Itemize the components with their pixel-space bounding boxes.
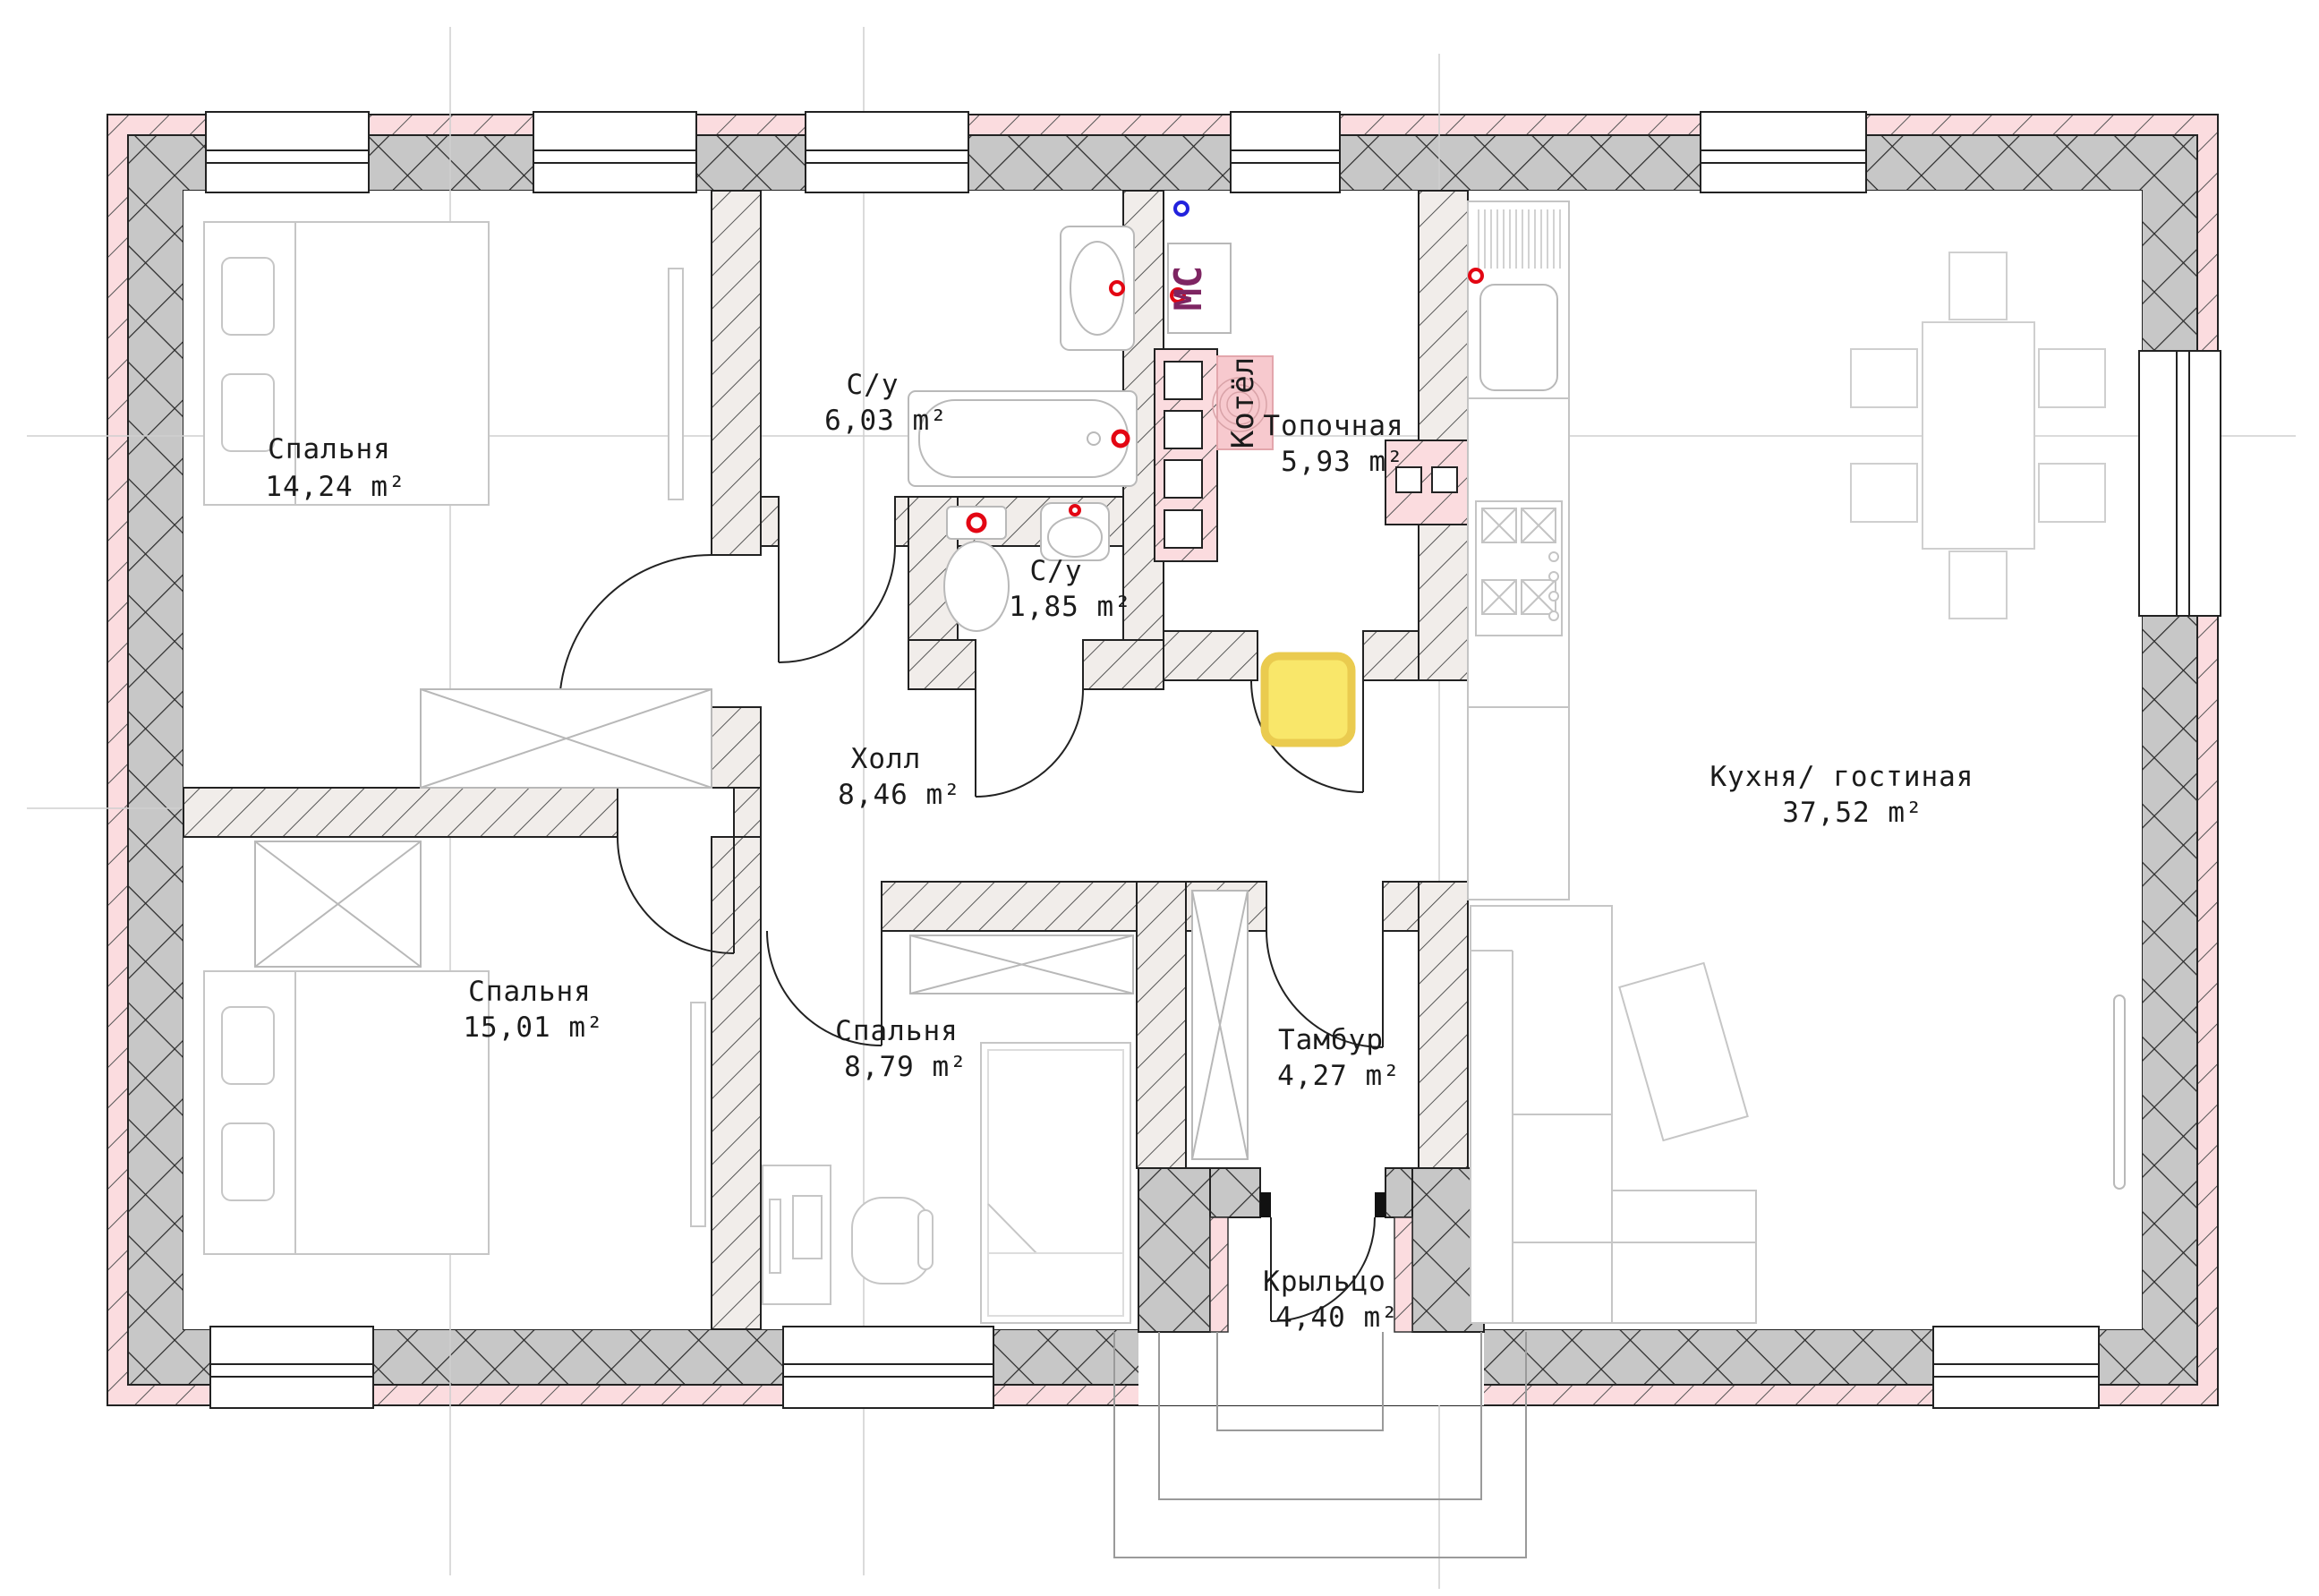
window-top-5 [1701,112,1866,192]
water-point-icon [1113,431,1128,446]
water-point-icon [1111,282,1123,294]
room-area: 4,27 m² [1277,1060,1401,1092]
wardrobe-vestibule [1192,891,1248,1159]
floor-plan-sheet: Спальня 14,24 m² С/у 6,03 m² Топочная 5,… [0,0,2319,1596]
window-right-1 [2139,351,2221,616]
room-name: Тамбур [1278,1024,1384,1056]
room-area: 1,85 m² [1009,591,1132,623]
kitchen-sink [1480,285,1557,390]
room-name: Спальня [835,1015,959,1047]
room-name: С/у [1030,555,1083,587]
room-area: 6,03 m² [824,405,948,437]
chimney-block-1 [1155,349,1217,561]
wardrobe-bedroom-2 [255,841,421,967]
pillow [222,1007,274,1084]
dresser [669,269,683,499]
room-area: 14,24 m² [265,471,405,503]
door-jamb [1260,1192,1271,1217]
room-name: С/у [847,369,899,401]
washing-machine-label: МС [1166,266,1210,312]
room-name: Спальня [468,976,592,1008]
window-top-1 [206,112,369,192]
chair [1851,349,1917,407]
room-name: Топочная [1263,410,1403,442]
room-area: 37,52 m² [1782,797,1923,829]
dining-table [1923,322,2034,549]
window-bottom-1 [210,1327,373,1408]
water-point-icon [968,515,985,531]
chair [1851,464,1917,522]
window-top-2 [533,112,696,192]
window-bottom-2 [783,1327,993,1408]
chair [2039,464,2105,522]
chair [1949,252,2007,320]
kitchen-fixtures [1468,201,1569,900]
window-top-3 [806,112,968,192]
tv [2114,995,2125,1189]
room-name: Кухня/ гостиная [1710,761,1974,793]
pillow [222,374,274,451]
pillow [222,1123,274,1200]
window-bottom-3 [1933,1327,2099,1408]
office-chair [852,1198,933,1284]
room-area: 4,40 m² [1275,1302,1399,1334]
room-area: 5,93 m² [1281,446,1404,478]
wardrobe-hall [421,689,712,788]
wardrobe-bedroom-3 [910,935,1133,994]
door-jamb [1375,1192,1385,1217]
door-highlight-marker[interactable] [1265,656,1351,743]
room-name: Холл [851,743,922,775]
pillow [222,258,274,335]
window-top-4 [1231,112,1340,192]
room-name: Крыльцо [1263,1266,1386,1298]
stove [1476,501,1562,636]
monitor [770,1199,780,1273]
room-area: 8,79 m² [844,1051,968,1083]
pc-tower [793,1196,822,1259]
boiler-label: Котёл [1225,357,1261,448]
porch-structure [1114,1168,1526,1558]
room-area: 15,01 m² [463,1011,603,1044]
chair [1949,551,2007,619]
room-name: Спальня [268,433,391,465]
chair [2039,349,2105,407]
water-point-icon [1070,506,1079,515]
power-point-icon [1175,202,1188,215]
dresser [691,1003,705,1226]
room-area: 8,46 m² [838,779,961,811]
water-point-icon [1470,269,1482,282]
